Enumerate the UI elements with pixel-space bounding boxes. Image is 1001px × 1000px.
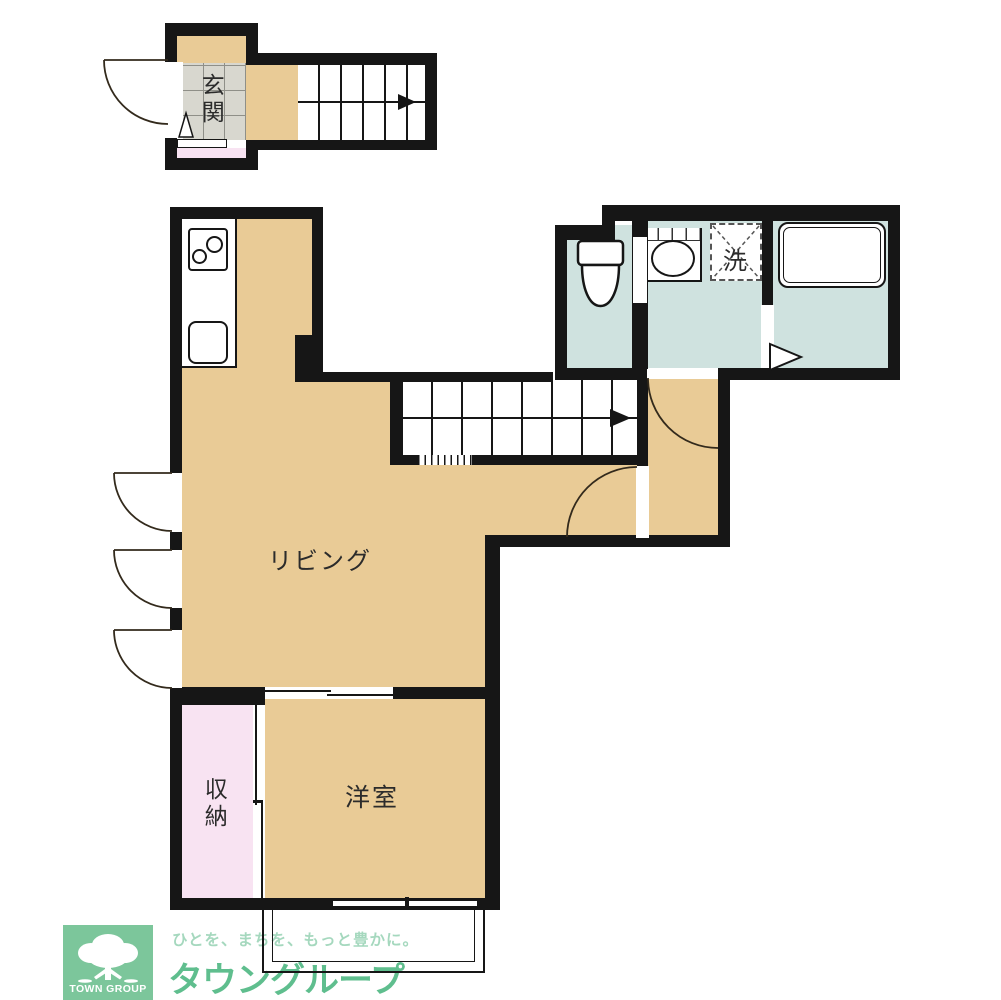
entrance-door-opening [164, 62, 183, 138]
window-opening [166, 550, 182, 608]
window-opening [166, 473, 182, 532]
wall [312, 207, 323, 335]
upper-stair-midline [298, 101, 425, 103]
stove-burner-large [206, 236, 223, 253]
main-stair-midline [403, 417, 637, 419]
tree-icon [63, 927, 153, 985]
balcony-inner [272, 906, 475, 962]
wall [170, 687, 182, 910]
washroom-door-leaf [647, 369, 718, 379]
wall [718, 368, 900, 380]
sliding-door-panel [265, 690, 331, 692]
wall [555, 368, 648, 380]
wall [485, 535, 500, 910]
toilet-room-floor [563, 225, 632, 368]
wall [637, 380, 648, 467]
floor-plan: 玄関 リビング 洋室 収納 洗 TOWN GROUP ひとを、まちを、もっと豊か… [0, 0, 1001, 1000]
wall [390, 373, 403, 465]
wall [295, 372, 553, 382]
town-group-wordmark: TOWN GROUP [63, 983, 153, 995]
closet-door-panel [255, 705, 257, 805]
south-window-tick [405, 897, 409, 909]
wall [170, 207, 182, 687]
wall [246, 53, 437, 65]
casement-window-arc [114, 473, 172, 531]
washbasin-icon [651, 240, 695, 277]
entrance-hall-floor [177, 36, 246, 63]
casement-window-arc [114, 630, 172, 688]
understair-hatch [418, 455, 472, 465]
toilet-door-leaf [633, 237, 647, 303]
stove-burner-small [192, 249, 207, 264]
wall [170, 687, 265, 705]
corridor-floor [648, 378, 718, 535]
entrance-door-arc [104, 60, 168, 124]
wall [485, 535, 730, 547]
wall [393, 687, 485, 699]
living-floor-upper [182, 380, 390, 465]
entrance-label: 玄関 [200, 72, 226, 126]
wall [258, 140, 437, 150]
bathroom-door-leaf [761, 305, 774, 368]
wall [718, 368, 730, 547]
laundry-label: 洗 [723, 241, 747, 276]
kitchen-sink-icon [188, 321, 228, 364]
window-opening [166, 630, 182, 688]
living-corridor-door-leaf [636, 466, 649, 538]
sliding-door-panel [327, 694, 393, 696]
living-floor-mid [182, 465, 637, 535]
closet-door-tick [253, 800, 261, 803]
casement-window-arc [114, 550, 172, 608]
wall [555, 225, 567, 380]
stair-landing-floor [246, 65, 298, 140]
living-label: リビング [250, 541, 390, 576]
wall [295, 335, 323, 372]
wall [165, 158, 258, 170]
wall [170, 207, 323, 219]
town-group-logo: TOWN GROUP [63, 925, 153, 1000]
storage-label: 収納 [203, 776, 229, 830]
wall [165, 23, 258, 36]
wall [425, 53, 437, 150]
wall [888, 205, 900, 380]
wall [246, 140, 258, 170]
bathtub-inner-line [783, 227, 881, 283]
closet-door-panel [261, 800, 263, 898]
entrance-step [177, 139, 227, 148]
sliding-door-opening [265, 687, 393, 699]
western-room-label: 洋室 [302, 778, 442, 814]
entrance-shoe-storage [177, 148, 246, 158]
wall [602, 205, 900, 221]
wall [762, 221, 773, 305]
